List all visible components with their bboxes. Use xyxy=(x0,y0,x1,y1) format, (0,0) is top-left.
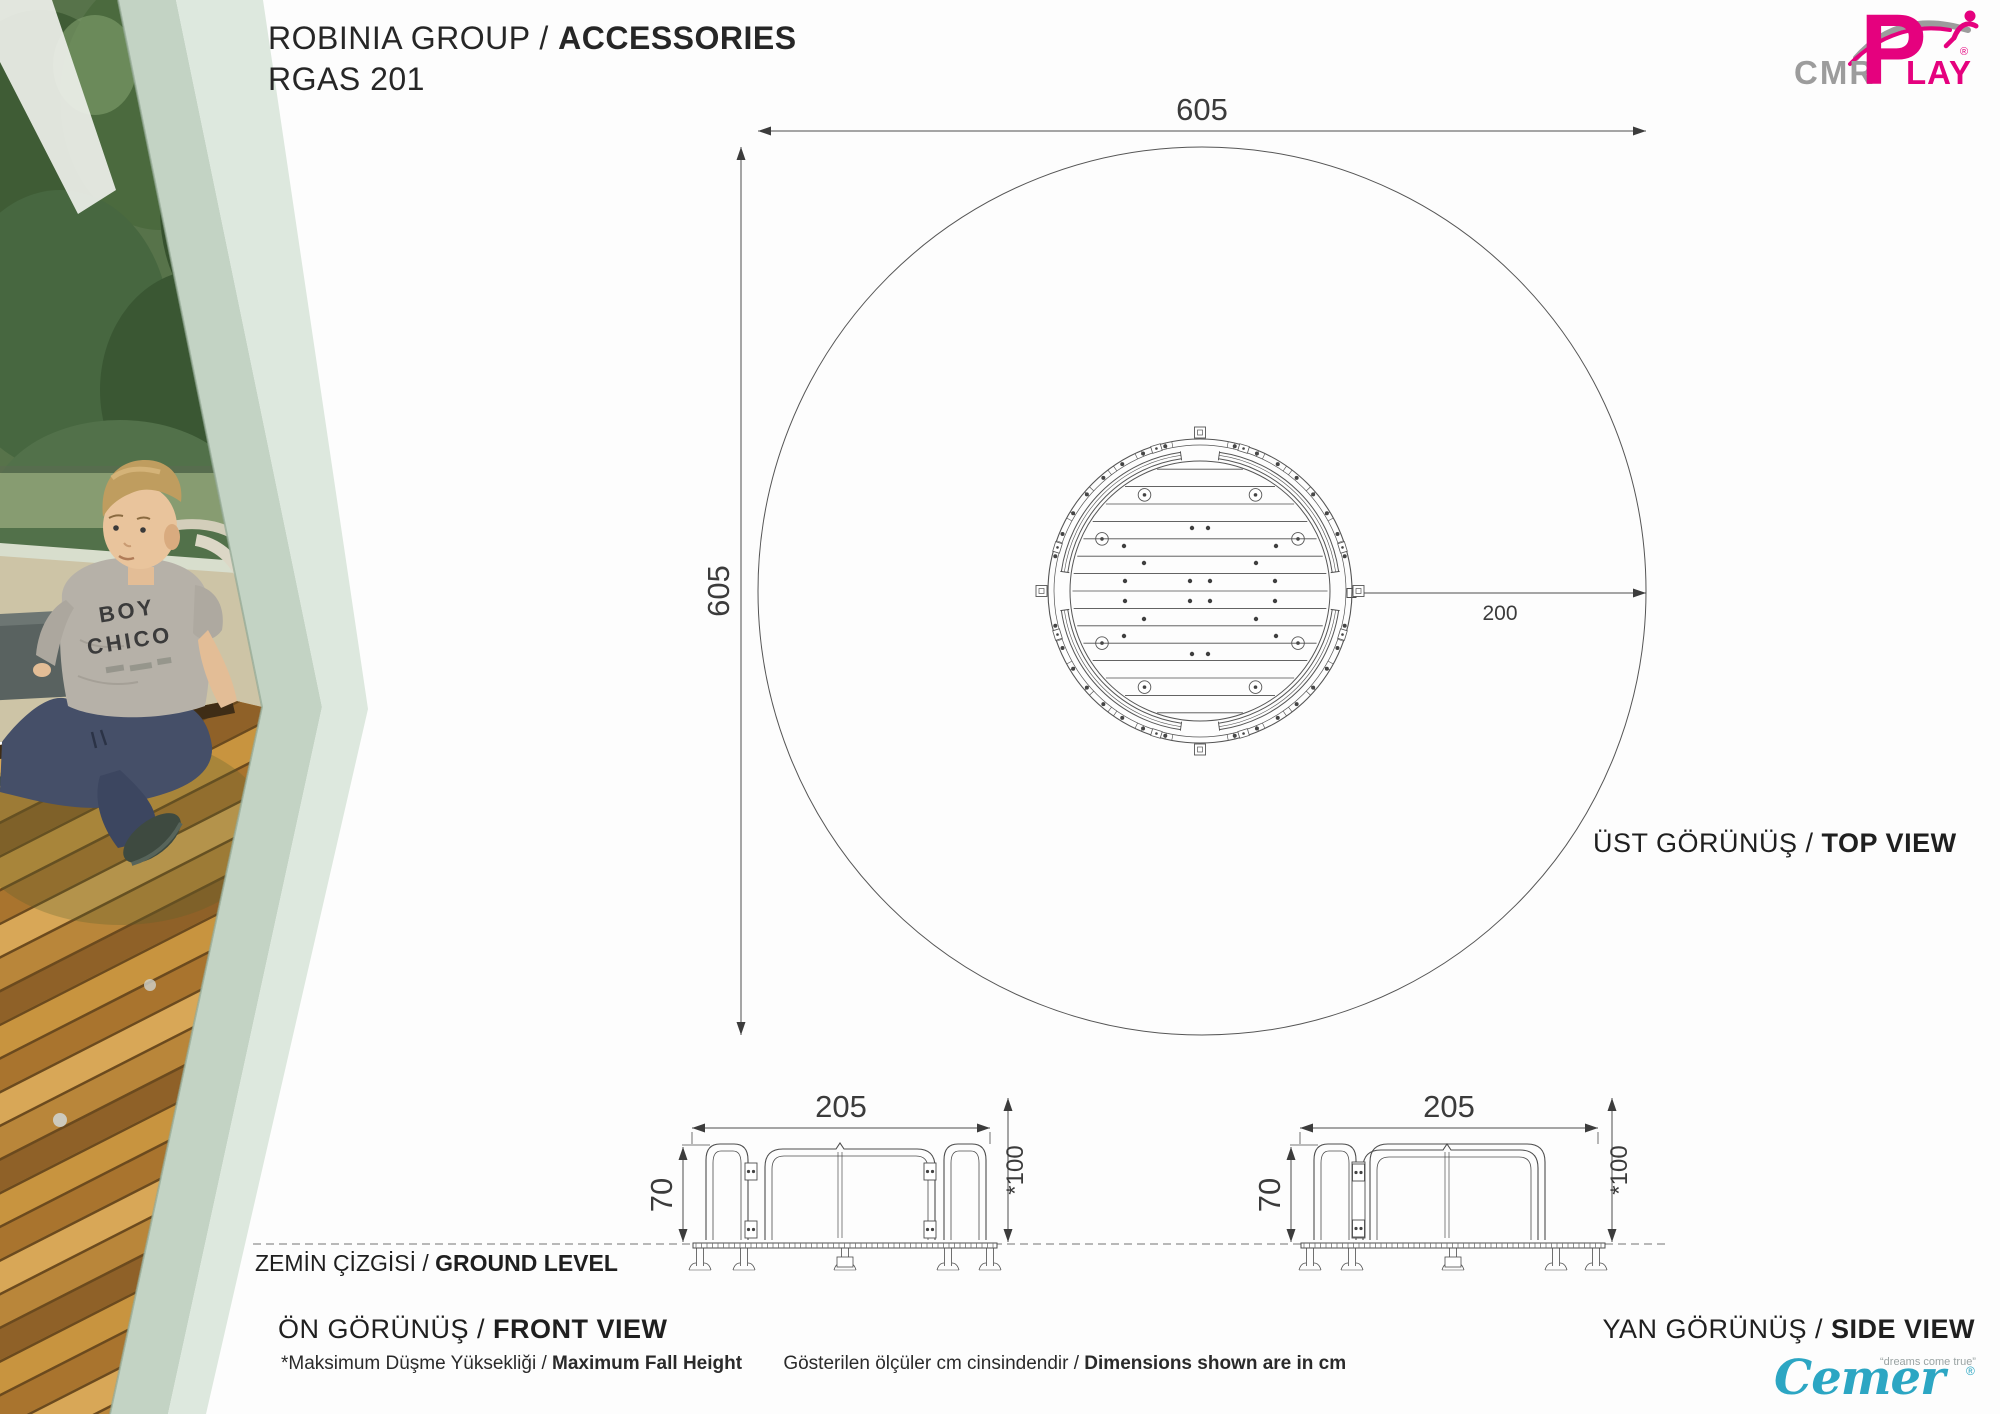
cemer-wordmark: Cemer xyxy=(1774,1350,1944,1406)
dim-side-fall-height: *100 xyxy=(1606,1145,1633,1194)
front-view-label: ÖN GÖRÜNÜŞ / FRONT VIEW xyxy=(278,1314,668,1345)
cemer-registered-mark: ® xyxy=(1966,1364,1975,1378)
dim-top-width: 605 xyxy=(1176,92,1228,127)
dim-clearance: 200 xyxy=(1482,602,1517,625)
cemer-logo: “dreams come true” Cemer ® xyxy=(1768,1342,1993,1412)
side-view-label: YAN GÖRÜNÜŞ / SIDE VIEW xyxy=(1602,1314,1975,1345)
dim-front-width: 205 xyxy=(815,1089,867,1124)
dim-front-fall-height: *100 xyxy=(1002,1145,1029,1194)
front-view-drawing xyxy=(689,1143,1001,1270)
top-view-label: ÜST GÖRÜNÜŞ / TOP VIEW xyxy=(1593,828,1957,859)
top-view-drawing xyxy=(737,127,1647,1036)
spec-sheet-page: { "header": { "series_regular": "ROBINIA… xyxy=(0,0,2000,1414)
dim-side-height: 70 xyxy=(1252,1178,1287,1212)
dim-side-width: 205 xyxy=(1423,1089,1475,1124)
footnote: *Maksimum Düşme Yüksekliği / Maximum Fal… xyxy=(281,1353,1346,1375)
side-view-drawing xyxy=(1299,1144,1607,1270)
dim-front-height: 70 xyxy=(644,1178,679,1212)
ground-level-label: ZEMİN ÇİZGİSİ / GROUND LEVEL xyxy=(255,1250,618,1277)
bench-top-view xyxy=(1036,427,1364,755)
technical-drawing: 605 605 200 205 70 *100 205 70 *100 xyxy=(0,0,2000,1414)
dim-top-height: 605 xyxy=(701,565,736,617)
